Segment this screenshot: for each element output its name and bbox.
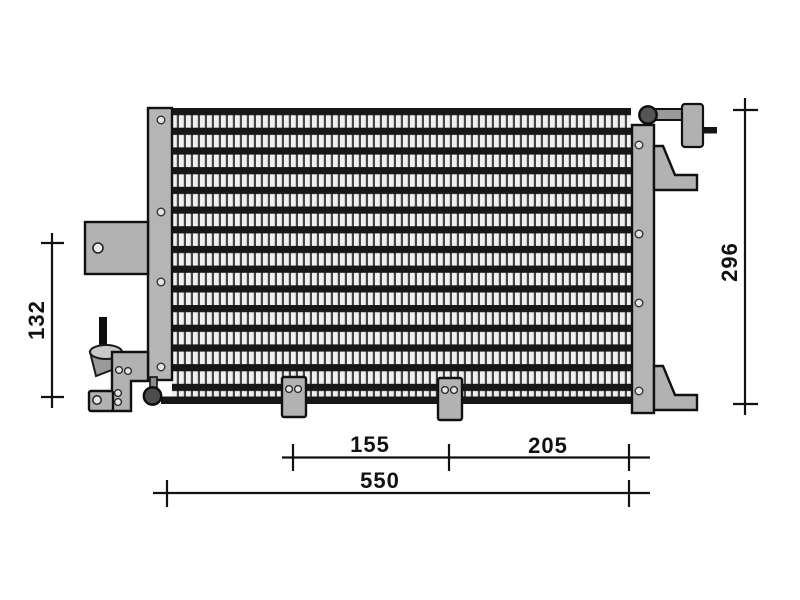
rivet-hole: [635, 141, 643, 149]
rivet-hole: [635, 230, 643, 238]
bracket-hole: [115, 390, 122, 397]
bottom-bracket-left-plate: [282, 377, 306, 417]
right-side-plate: [632, 125, 654, 413]
condenser-diagram: 132 296 155 205 550: [0, 0, 800, 600]
right-lower-foot: [654, 366, 697, 410]
right-side-plate-body: [632, 125, 654, 413]
left-side-plate-body: [148, 108, 172, 380]
foot-hole: [93, 396, 101, 404]
bracket-hole: [286, 386, 293, 393]
dim-label-205: 205: [528, 433, 568, 458]
bracket-hole: [442, 387, 449, 394]
rivet-hole: [635, 387, 643, 395]
bottom-bracket-right: [438, 378, 462, 420]
rivet-hole: [157, 278, 165, 286]
bottom-bracket-left: [282, 377, 306, 417]
upper-port-circle: [639, 106, 656, 123]
dim-label-132: 132: [24, 300, 49, 340]
fitting-cylinder: [682, 104, 703, 147]
right-upper-foot-plate: [654, 146, 697, 190]
right-upper-foot: [654, 146, 697, 190]
upper-left-bracket: [85, 222, 148, 274]
core-tube-fin-matrix: [172, 108, 631, 404]
fitting-stub: [703, 127, 717, 134]
rivet-hole: [157, 116, 165, 124]
dim-label-550: 550: [360, 468, 400, 493]
bracket-hole: [451, 387, 458, 394]
dimension-132: 132: [24, 233, 64, 408]
dimension-550: 550: [153, 468, 650, 507]
left-side-plate: [148, 108, 172, 380]
fitting-pipe: [654, 109, 684, 120]
dim-label-296: 296: [717, 242, 742, 282]
bracket-hole: [116, 367, 123, 374]
mounting-hole: [93, 243, 103, 253]
dimension-296: 296: [717, 98, 758, 415]
bracket-hole: [125, 368, 132, 375]
dimension-155-205: 155 205: [282, 432, 650, 471]
rivet-hole: [157, 208, 165, 216]
bracket-hole: [115, 399, 122, 406]
condenser-core: [161, 108, 631, 404]
dim-label-155: 155: [350, 432, 390, 457]
right-lower-foot-plate: [654, 366, 697, 410]
bottom-bracket-right-plate: [438, 378, 462, 420]
core-bottom-edge: [161, 397, 631, 405]
rivet-hole: [635, 299, 643, 307]
technical-drawing-canvas: 132 296 155 205 550: [0, 0, 800, 600]
bracket-hole: [295, 386, 302, 393]
lower-port-circle: [144, 387, 161, 404]
rivet-hole: [157, 363, 165, 371]
